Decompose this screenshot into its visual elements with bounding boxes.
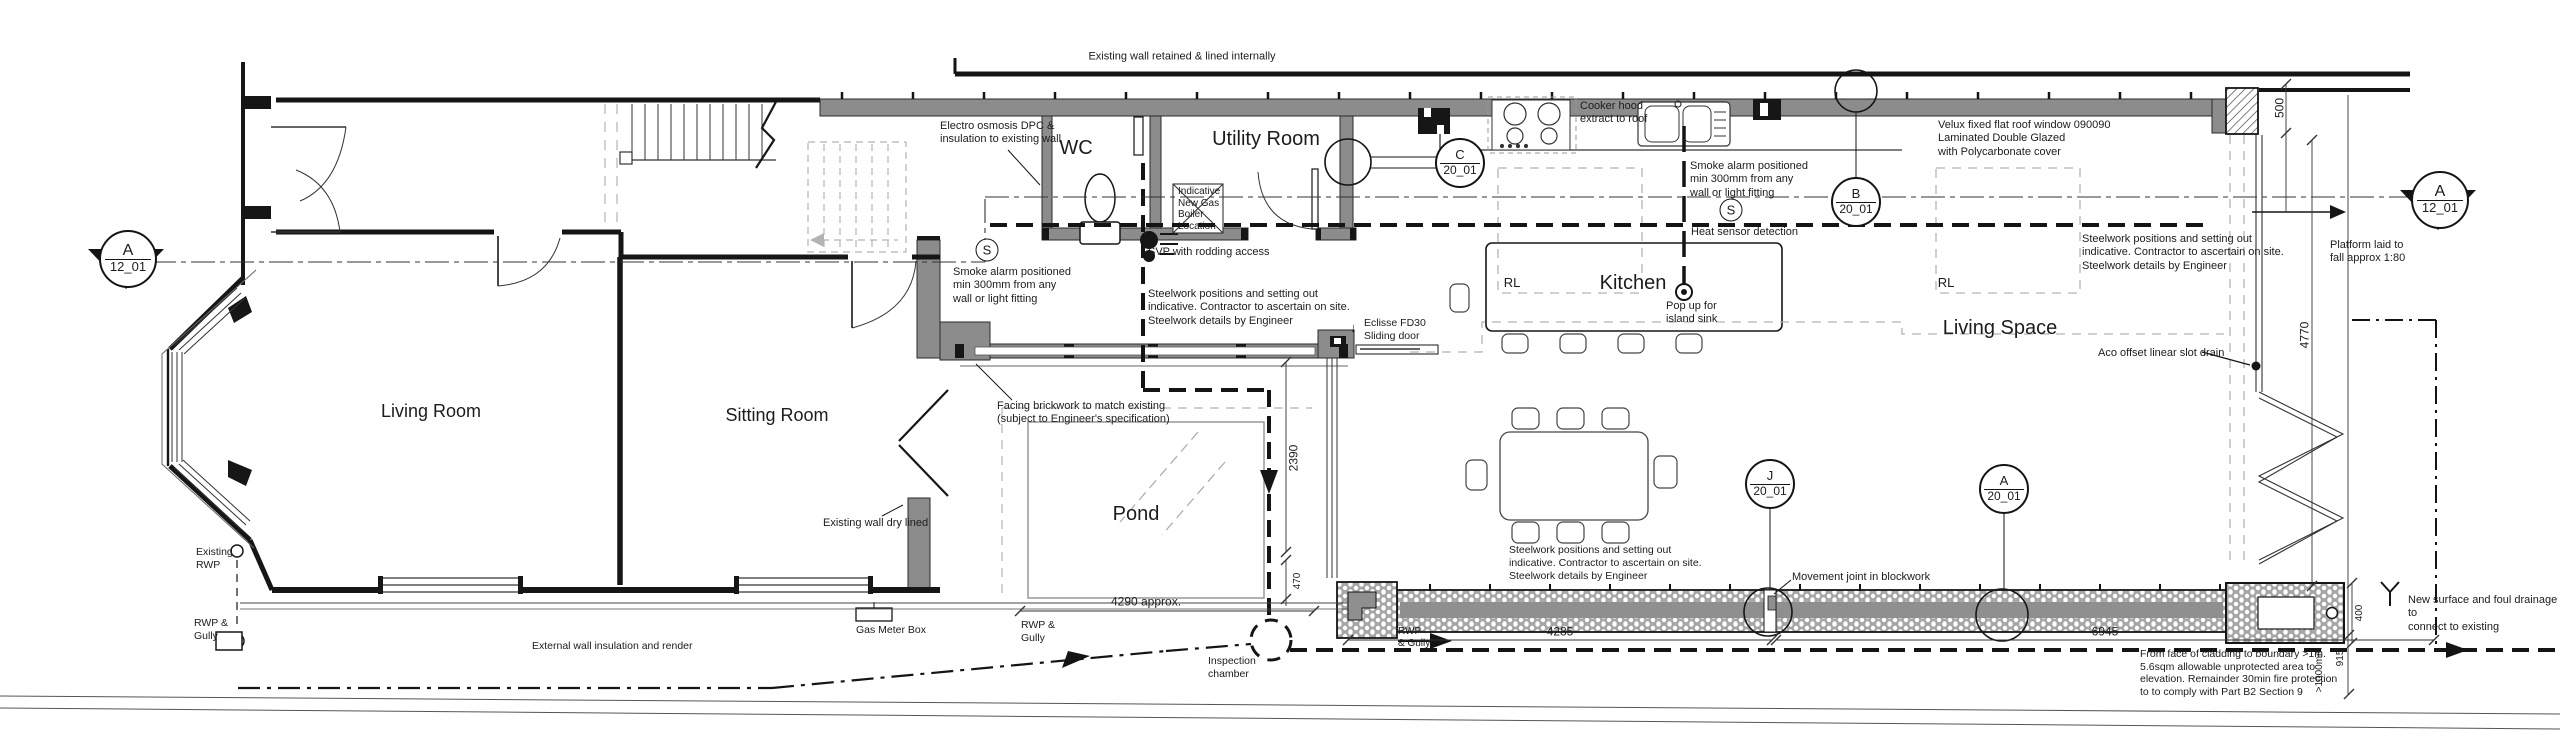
extension-south-wall [1337,582,2344,643]
floor-plan-linework [0,0,2560,749]
detail-sheet: 20_01 [1440,163,1479,178]
rooflight-label-2: RL [1938,275,1955,291]
dim-4770: 4770 [2298,322,2313,349]
detail-tag-b: B 20_01 [1831,177,1881,227]
note-velux: Velux fixed flat roof window 090090 Lami… [1938,119,2110,159]
floor-plan: Living Room Sitting Room WC Utility Room… [0,0,2560,749]
note-steelwork-3: Steelwork positions and setting out indi… [2082,233,2284,273]
room-label-kitchen: Kitchen [1600,271,1667,295]
note-eclisse: Eclisse FD30 Sliding door [1364,317,1426,343]
note-smoke-alarm-1: Smoke alarm positioned min 300mm from an… [953,266,1071,306]
doors [271,117,2343,564]
note-platform: Platform laid to fall approx 1:80 [2330,239,2405,266]
section-letter: A [123,243,134,260]
note-rwp-gully-3: RWP & Gully [1398,626,1430,650]
detail-sheet: 20_01 [1984,489,2023,504]
dining-table [1466,408,1677,543]
stairs [605,98,778,228]
note-dry-lined: Existing wall dry lined [823,517,928,530]
note-external-render: External wall insulation and render [532,640,693,653]
room-label-wc: WC [1059,136,1092,160]
dim-400: 400 [2354,605,2366,622]
detail-letter: J [1767,469,1774,483]
dim-500: 500 [2273,98,2288,118]
dim-1000mm: >1000mm [2314,648,2326,693]
detail-tag-j: J 20_01 [1745,459,1795,509]
existing-stair-dashed [808,142,906,252]
dim-6945: 6945 [2092,625,2119,640]
section-letter: A [2435,184,2446,201]
section-sheet: 12_01 [2417,200,2463,216]
note-steelwork-2: Steelwork positions and setting out indi… [1509,544,1702,582]
room-label-utility: Utility Room [1212,127,1320,151]
note-facing-brickwork: Facing brickwork to match existing (subj… [997,400,1170,427]
sliding-door-arrow-icon: ↓ [1350,320,1357,335]
note-new-drainage: New surface and foul drainage to connect… [2408,594,2560,634]
note-existing-wall: Existing wall retained & lined internall… [1088,50,1275,63]
note-heat-sensor: Heat sensor detection [1691,226,1798,239]
note-movement-joint: Movement joint in blockwork [1792,571,1930,584]
dim-4285: 4285 [1547,625,1574,640]
note-rwp-gully-1: RWP & Gully [194,617,228,643]
room-label-living-space: Living Space [1943,316,2058,340]
road-lines [0,696,2560,729]
dim-470: 470 [1292,573,1304,590]
detail-sheet: 20_01 [1836,202,1875,217]
note-popup-sink: Pop up for island sink [1666,300,1717,327]
note-cooker-hood: Cooker hood extract to roof [1580,100,1647,127]
wall-ties [842,92,2191,99]
note-steelwork-1: Steelwork positions and setting out indi… [1148,288,1350,328]
rooflight-label-1: RL [1504,275,1521,291]
note-electro-osmosis: Electro osmosis DPC & insulation to exis… [940,120,1061,147]
dim-915: 915 [2335,650,2347,667]
smoke-alarm-symbol-1: S [976,239,999,262]
detail-sheet: 20_01 [1750,484,1789,499]
detail-letter: A [2000,474,2009,488]
note-rwp-gully-2: RWP & Gully [1021,619,1055,645]
detail-tag-c: C 20_01 [1435,138,1485,188]
note-smoke-alarm-2: Smoke alarm positioned min 300mm from an… [1690,160,1808,200]
dim-2390: 2390 [1287,445,1302,472]
smoke-alarm-symbol-2: S [1720,199,1743,222]
dim-4290: 4290 approx. [1111,595,1181,610]
note-boiler: Indicative New Gas Boiler Location [1178,186,1220,232]
note-inspection-chamber: Inspection chamber [1208,655,1256,681]
note-boundary-fire: From face of cladding to boundary >1m. 5… [2140,648,2337,698]
note-aco-drain: Aco offset linear slot drain [2098,347,2224,360]
detail-letter: C [1455,148,1464,162]
detail-letter: B [1852,187,1861,201]
room-label-sitting-room: Sitting Room [725,405,828,427]
section-sheet: 12_01 [105,259,151,275]
note-existing-rwp: Existing RWP [196,546,233,572]
insulated-jamb [2226,88,2258,134]
detail-tag-a: A 20_01 [1979,464,2029,514]
note-gas-meter: Gas Meter Box [856,624,926,637]
room-label-living-room: Living Room [381,401,481,423]
garden-lines [240,603,1348,609]
note-svp: SVP with rodding access [1148,246,1269,259]
room-label-pond: Pond [1113,502,1160,526]
